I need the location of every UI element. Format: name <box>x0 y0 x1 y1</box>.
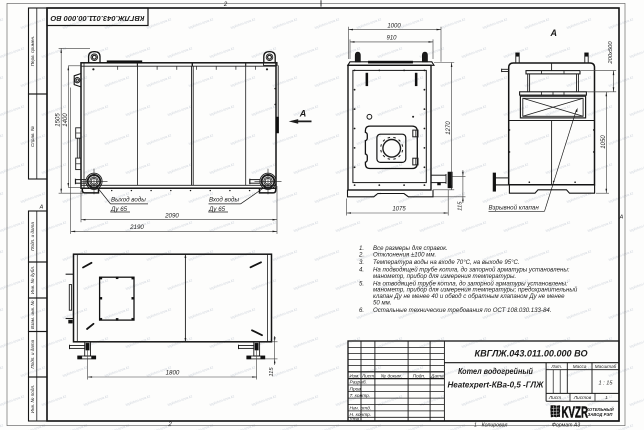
svg-text:115: 115 <box>458 201 464 211</box>
svg-text:115: 115 <box>269 367 275 377</box>
svg-text:Утв.: Утв. <box>350 417 361 423</box>
svg-text:Остальные технические требован: Остальные технические требования по ОСТ … <box>373 307 551 314</box>
svg-text:910: 910 <box>386 36 397 42</box>
svg-text:1050: 1050 <box>601 135 607 149</box>
svg-text:КВГЛЖ.043.011.00.000 ВО: КВГЛЖ.043.011.00.000 ВО <box>475 348 589 359</box>
svg-text:1 : 15: 1 : 15 <box>599 381 614 387</box>
svg-text:1505: 1505 <box>56 113 62 127</box>
svg-text:Выход воды: Выход воды <box>111 197 146 204</box>
svg-text:КВГЛЖ.043.011.00.000 ВО: КВГЛЖ.043.011.00.000 ВО <box>50 14 144 23</box>
svg-text:Изм.: Изм. <box>349 373 359 379</box>
svg-text:6.: 6. <box>359 307 364 314</box>
svg-text:Лит.: Лит. <box>550 364 562 369</box>
svg-text:3.: 3. <box>359 259 364 266</box>
svg-text:Справ. №: Справ. № <box>30 126 35 147</box>
svg-text:№ докум.: № докум. <box>381 373 402 379</box>
svg-text:манометр, прибор для измерения: манометр, прибор для измерения температу… <box>373 273 516 280</box>
svg-text:Подп. и дата: Подп. и дата <box>30 222 35 251</box>
svg-text:Листов: Листов <box>573 395 592 401</box>
svg-text:1075: 1075 <box>392 207 406 213</box>
svg-text:200х500: 200х500 <box>608 41 614 65</box>
svg-text:50 мм.: 50 мм. <box>373 299 392 306</box>
svg-text:Разраб.: Разраб. <box>350 380 367 386</box>
svg-text:Перв. примен.: Перв. примен. <box>30 36 35 67</box>
svg-text:А: А <box>619 215 624 221</box>
svg-text:2190: 2190 <box>129 224 144 231</box>
svg-text:А: А <box>550 28 558 38</box>
svg-text:А: А <box>39 205 44 211</box>
svg-text:2.: 2. <box>358 252 364 259</box>
svg-text:2090: 2090 <box>164 212 179 219</box>
svg-text:Масштаб: Масштаб <box>595 364 617 369</box>
svg-text:Формат А3: Формат А3 <box>552 422 580 428</box>
svg-text:Инв. № дубл.: Инв. № дубл. <box>30 266 35 294</box>
svg-text:1800: 1800 <box>166 370 180 377</box>
svg-text:Heatexpert-КВа-0,5 -ГЛЖ: Heatexpert-КВа-0,5 -ГЛЖ <box>448 380 545 389</box>
svg-text:Подп. и дата: Подп. и дата <box>30 339 35 368</box>
svg-text:Взрывной клапан: Взрывной клапан <box>489 204 540 211</box>
svg-text:2: 2 <box>167 422 172 428</box>
svg-text:4.: 4. <box>359 267 364 274</box>
svg-text:Лист: Лист <box>361 373 374 379</box>
svg-text:KVZR: KVZR <box>562 404 589 421</box>
svg-text:1: 1 <box>605 395 608 401</box>
svg-text:А: А <box>299 109 307 119</box>
svg-text:Котел водогрейный: Котел водогрейный <box>458 367 533 376</box>
svg-text:Температура воды на входе 70°С: Температура воды на входе 70°С, на выход… <box>373 259 520 266</box>
svg-text:2: 2 <box>223 2 228 8</box>
svg-text:1400: 1400 <box>63 113 69 127</box>
svg-text:Т. контр.: Т. контр. <box>350 393 371 399</box>
svg-text:Копировал: Копировал <box>482 422 508 428</box>
svg-text:Вход воды: Вход воды <box>209 197 239 204</box>
svg-text:Подп.: Подп. <box>413 373 426 379</box>
svg-text:Лист: Лист <box>548 395 561 401</box>
svg-text:Нач. отд.: Нач. отд. <box>350 406 372 412</box>
svg-text:1270: 1270 <box>446 121 452 135</box>
svg-text:Взам. инв. №: Взам. инв. № <box>30 301 35 329</box>
svg-text:Отклонения ±100 мм.: Отклонения ±100 мм. <box>373 252 436 259</box>
svg-text:5.: 5. <box>359 280 364 287</box>
svg-text:1000: 1000 <box>387 23 401 29</box>
svg-text:Пров.: Пров. <box>350 386 363 392</box>
svg-text:Дата: Дата <box>430 373 444 379</box>
svg-text:1: 1 <box>474 422 477 428</box>
svg-text:Масса: Масса <box>573 364 587 369</box>
svg-text:Инв. № подл.: Инв. № подл. <box>30 385 35 414</box>
svg-text:ЗАВОД РЭП: ЗАВОД РЭП <box>588 412 614 417</box>
svg-text:клапан Ду не менее 40 и обвод: клапан Ду не менее 40 и обвод с обратным… <box>373 293 565 300</box>
